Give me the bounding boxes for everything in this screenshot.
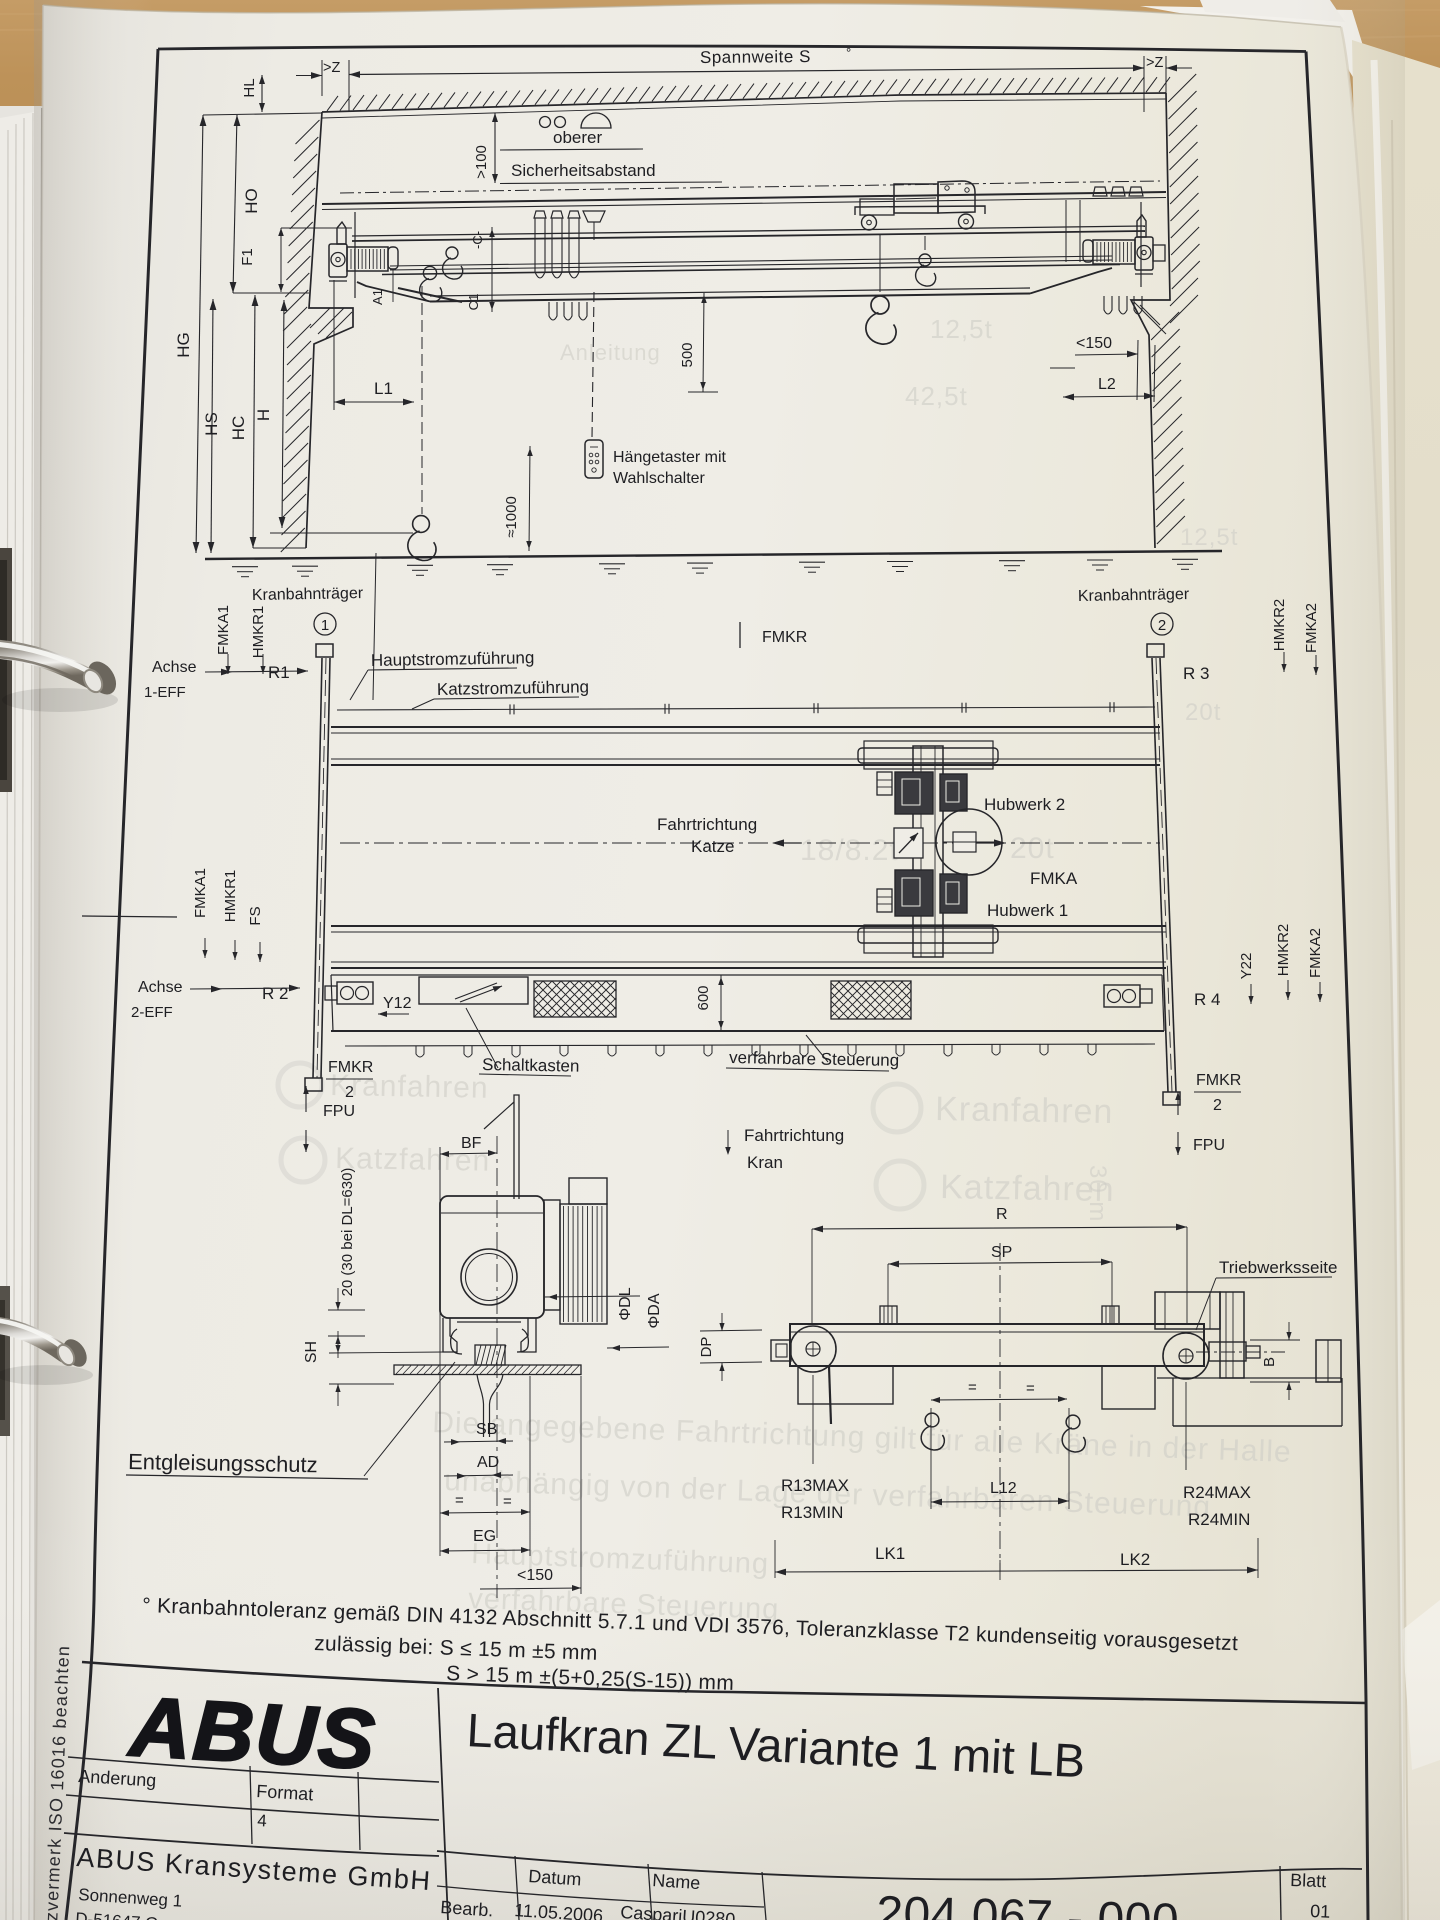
svg-text:2: 2: [345, 1084, 354, 1101]
svg-text:EG: EG: [473, 1528, 496, 1545]
svg-text:SP: SP: [991, 1244, 1012, 1261]
svg-text:R24MIN: R24MIN: [1188, 1510, 1250, 1529]
svg-text:HMKR1: HMKR1: [250, 606, 267, 659]
svg-text:>Z: >Z: [323, 60, 340, 76]
svg-text:L2: L2: [1098, 376, 1116, 393]
svg-text:Entgleisungsschutz: Entgleisungsschutz: [128, 1449, 318, 1477]
svg-text:Hängetaster mit: Hängetaster mit: [613, 449, 726, 466]
svg-text:R13MAX: R13MAX: [781, 1476, 849, 1495]
svg-text:01: 01: [1310, 1901, 1331, 1920]
svg-text:HL: HL: [241, 78, 258, 97]
svg-text:18/8.2t: 18/8.2t: [800, 834, 899, 867]
svg-text:Kranbahnträger: Kranbahnträger: [252, 585, 364, 604]
svg-text:SB: SB: [476, 1421, 497, 1438]
svg-text:Fahrtrichtung: Fahrtrichtung: [744, 1126, 844, 1145]
svg-text:20 (30 bei DL=630): 20 (30 bei DL=630): [339, 1168, 356, 1297]
svg-text:R 2: R 2: [262, 984, 288, 1003]
svg-text:Hauptstromzuführung: Hauptstromzuführung: [371, 648, 535, 670]
svg-text:oberer: oberer: [553, 128, 602, 147]
svg-text:FMKA2: FMKA2: [1307, 928, 1324, 978]
svg-text:500: 500: [679, 342, 696, 367]
svg-text:FPU: FPU: [1193, 1137, 1225, 1154]
svg-text:FMKA: FMKA: [1030, 869, 1078, 888]
svg-text:°: °: [846, 45, 851, 60]
svg-text:FPU: FPU: [323, 1103, 355, 1120]
svg-text:Y12: Y12: [383, 995, 412, 1012]
svg-text:FMKR: FMKR: [328, 1059, 373, 1076]
svg-text:12,5t: 12,5t: [930, 314, 993, 344]
svg-text:-C-: -C-: [470, 231, 485, 249]
svg-text:Achse: Achse: [138, 979, 183, 996]
svg-text:Kranfahren: Kranfahren: [935, 1090, 1114, 1131]
svg-text:1-EFF: 1-EFF: [144, 684, 186, 701]
svg-text:42,5t: 42,5t: [905, 381, 968, 411]
svg-text:2: 2: [1213, 1097, 1222, 1114]
svg-text:FMKA1: FMKA1: [192, 868, 209, 918]
svg-text:<150: <150: [1076, 335, 1112, 352]
svg-text:=: =: [1026, 1380, 1035, 1397]
svg-text:HMKR2: HMKR2: [1271, 599, 1288, 652]
svg-text:>100: >100: [473, 145, 490, 179]
svg-text:Katzstromzuführung: Katzstromzuführung: [437, 677, 589, 699]
svg-text:HC: HC: [229, 416, 248, 441]
svg-text:Hubwerk 2: Hubwerk 2: [984, 795, 1065, 814]
svg-text:12,5t: 12,5t: [1180, 524, 1238, 551]
svg-text:Sicherheitsabstand: Sicherheitsabstand: [511, 161, 656, 180]
svg-text:Bearb.: Bearb.: [440, 1897, 494, 1920]
svg-text:DP: DP: [698, 1337, 715, 1358]
svg-text:2: 2: [1158, 617, 1166, 634]
svg-text:ΦDA: ΦDA: [646, 1293, 663, 1328]
svg-text:=: =: [968, 1379, 977, 1396]
svg-text:Fahrtrichtung: Fahrtrichtung: [657, 815, 757, 834]
svg-text:B: B: [1261, 1357, 1278, 1367]
svg-text:=: =: [455, 1492, 464, 1509]
svg-text:FMKR: FMKR: [762, 629, 807, 646]
svg-text:F1: F1: [239, 248, 256, 266]
svg-text:Achse: Achse: [152, 659, 197, 676]
svg-text:1: 1: [321, 617, 329, 634]
svg-text:verfahrbare Steuerung: verfahrbare Steuerung: [729, 1048, 899, 1070]
svg-text:Blatt: Blatt: [1290, 1870, 1327, 1891]
svg-text:FMKR: FMKR: [1196, 1072, 1241, 1089]
svg-text:Spannweite S: Spannweite S: [700, 47, 811, 67]
svg-text:R 4: R 4: [1194, 990, 1220, 1009]
svg-text:BF: BF: [461, 1135, 482, 1152]
svg-text:C1: C1: [466, 294, 481, 311]
svg-text:Kran: Kran: [747, 1153, 783, 1172]
svg-text:HG: HG: [174, 332, 193, 358]
svg-text:FMKA1: FMKA1: [215, 605, 232, 655]
svg-text:4: 4: [257, 1811, 268, 1831]
svg-text:600: 600: [695, 985, 712, 1010]
svg-text:AD: AD: [477, 1454, 499, 1471]
svg-text:R: R: [996, 1206, 1008, 1223]
svg-text:H: H: [254, 409, 273, 421]
svg-text:LK1: LK1: [875, 1544, 905, 1563]
svg-text:R1: R1: [268, 663, 290, 682]
svg-text:Anleitung: Anleitung: [560, 340, 661, 365]
svg-text:=: =: [503, 1493, 512, 1510]
svg-text:Kranbahnträger: Kranbahnträger: [1078, 586, 1190, 605]
svg-text:SH: SH: [303, 1341, 320, 1363]
svg-text:FS: FS: [247, 906, 264, 925]
svg-text:L1: L1: [374, 379, 393, 398]
svg-text:Hubwerk 1: Hubwerk 1: [987, 901, 1068, 920]
svg-text:2-EFF: 2-EFF: [131, 1004, 173, 1021]
svg-text:Katze: Katze: [691, 837, 734, 856]
svg-text:Wahlschalter: Wahlschalter: [613, 470, 706, 487]
svg-text:20t: 20t: [1010, 832, 1055, 865]
svg-text:20t: 20t: [1185, 699, 1221, 726]
svg-text:30 m: 30 m: [1084, 1165, 1111, 1222]
svg-text:HMKR1: HMKR1: [222, 870, 239, 923]
svg-text:Datum: Datum: [528, 1866, 582, 1889]
svg-text:Format: Format: [256, 1781, 314, 1804]
svg-text:≈1000: ≈1000: [503, 496, 520, 538]
svg-text:<150: <150: [517, 1567, 553, 1584]
svg-text:R13MIN: R13MIN: [781, 1503, 843, 1522]
svg-text:R 3: R 3: [1183, 664, 1209, 683]
svg-text:FMKA2: FMKA2: [1303, 603, 1320, 653]
svg-text:HMKR2: HMKR2: [1275, 924, 1292, 977]
svg-text:>Z: >Z: [1146, 55, 1163, 71]
svg-text:R24MAX: R24MAX: [1183, 1483, 1251, 1502]
svg-text:Triebwerksseite: Triebwerksseite: [1219, 1258, 1337, 1277]
svg-text:Y22: Y22: [1238, 953, 1255, 980]
svg-text:L12: L12: [990, 1480, 1017, 1497]
svg-text:ΦDL: ΦDL: [617, 1287, 634, 1320]
svg-text:A1: A1: [370, 289, 385, 305]
svg-text:Name: Name: [652, 1870, 701, 1893]
svg-text:HO: HO: [242, 188, 261, 214]
svg-text:HS: HS: [202, 412, 221, 436]
svg-text:LK2: LK2: [1120, 1550, 1150, 1569]
